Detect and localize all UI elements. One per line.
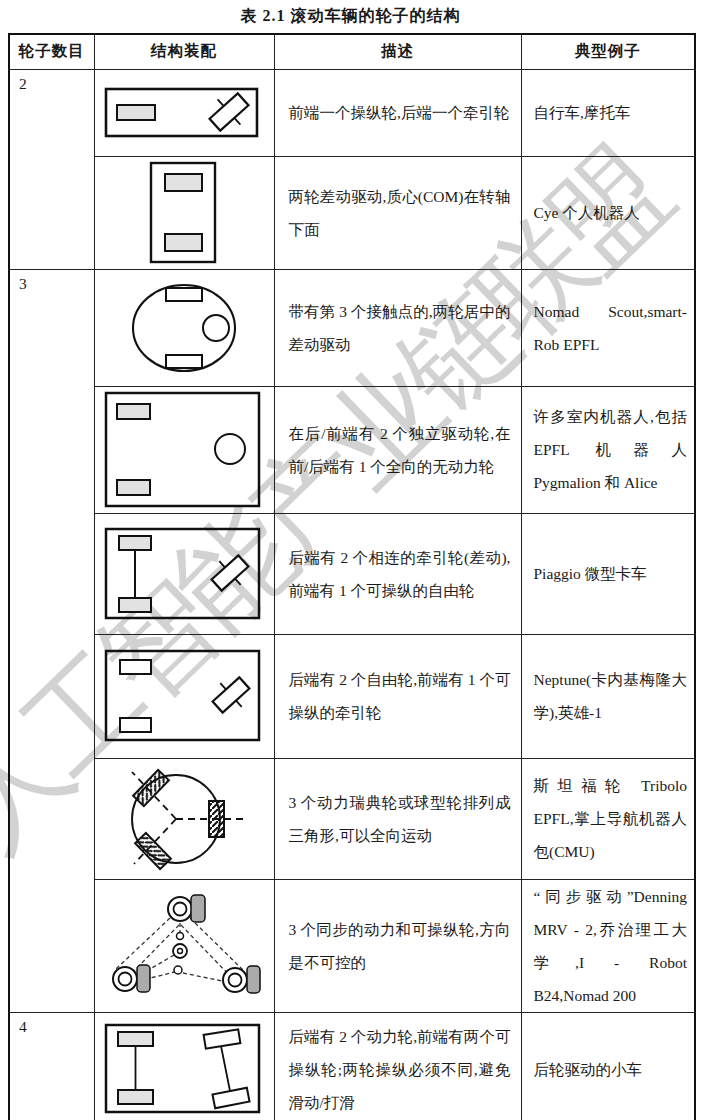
book-page: 人工智能产业链联盟 表 2.1 滚动车辆的轮子的结构 轮子数目 结构装配 描述 … — [0, 0, 701, 1120]
two-wheel-differential-com-diagram — [149, 161, 219, 265]
description-cell: 3 个动力瑞典轮或球型轮排列成三角形,可以全向运动 — [274, 758, 521, 879]
three-wheel-synchro-drive-diagram — [100, 893, 268, 999]
wheel-count-2: 2 — [9, 69, 94, 269]
three-wheel-independent-drive-diagram — [104, 391, 264, 509]
table-row: 3 个同步的动力和可操纵轮,方向是不可控的 “同步驱动”Denning MRV … — [9, 879, 695, 1012]
description-cell: 前端一个操纵轮,后端一个牵引轮 — [274, 69, 521, 156]
examples-cell: 斯坦福轮 Tribolo EPFL,掌上导航机器人包(CMU) — [521, 758, 695, 879]
wheel-count-3: 3 — [9, 269, 94, 1012]
diagram-cell — [94, 69, 274, 156]
table-row: 4 — [9, 1012, 695, 1120]
table-row: 两轮差动驱动,质心(COM)在转轴下面 Cye 个人机器人 — [9, 156, 695, 269]
examples-cell: 许多室内机器人,包括 EPFL 机器人 Pygmalion 和 Alice — [521, 386, 695, 513]
table-row: 3 带有第 3 个接触点的,两轮居中的差动驱动 Nomad Scout,smar… — [9, 269, 695, 386]
three-wheel-steered-traction-diagram — [104, 649, 264, 743]
description-cell: 3 个同步的动力和可操纵轮,方向是不可控的 — [274, 879, 521, 1012]
table-row: 2 前端一个操纵轮,后端一个牵引轮 自行车,摩托车 — [9, 69, 695, 156]
diagram-cell — [94, 156, 274, 269]
three-swedish-wheels-triangle-diagram — [116, 767, 252, 871]
two-wheel-bicycle-diagram — [104, 87, 264, 139]
table-title: 表 2.1 滚动车辆的轮子的结构 — [0, 6, 701, 27]
col-header-description: 描述 — [274, 34, 521, 69]
four-wheel-rear-drive-diagram — [104, 1023, 264, 1115]
diagram-cell — [94, 269, 274, 386]
description-cell: 后端有 2 个动力轮,前端有两个可操纵轮;两轮操纵必须不同,避免滑动/打滑 — [274, 1012, 521, 1120]
examples-cell: 后轮驱动的小车 — [521, 1012, 695, 1120]
table-row: 后端有 2 个相连的牵引轮(差动),前端有 1 个可操纵的自由轮 Piaggio… — [9, 513, 695, 634]
col-header-structure: 结构装配 — [94, 34, 274, 69]
examples-cell: Nomad Scout,smart-Rob EPFL — [521, 269, 695, 386]
diagram-cell — [94, 1012, 274, 1120]
examples-cell: Neptune(卡内基梅隆大学),英雄-1 — [521, 634, 695, 758]
three-wheel-connected-traction-diagram — [104, 527, 264, 621]
description-cell: 带有第 3 个接触点的,两轮居中的差动驱动 — [274, 269, 521, 386]
col-header-wheel-count: 轮子数目 — [9, 34, 94, 69]
examples-cell: 自行车,摩托车 — [521, 69, 695, 156]
wheel-count-4: 4 — [9, 1012, 94, 1120]
wheel-structure-table: 轮子数目 结构装配 描述 典型例子 2 — [8, 33, 696, 1120]
table-row: 后端有 2 个自由轮,前端有 1 个可操纵的牵引轮 Neptune(卡内基梅隆大… — [9, 634, 695, 758]
description-cell: 两轮差动驱动,质心(COM)在转轴下面 — [274, 156, 521, 269]
table-row: 3 个动力瑞典轮或球型轮排列成三角形,可以全向运动 斯坦福轮 Tribolo E… — [9, 758, 695, 879]
examples-cell: Cye 个人机器人 — [521, 156, 695, 269]
description-cell: 在后/前端有 2 个独立驱动轮,在前/后端有 1 个全向的无动力轮 — [274, 386, 521, 513]
diagram-cell — [94, 386, 274, 513]
col-header-examples: 典型例子 — [521, 34, 695, 69]
header-row: 轮子数目 结构装配 描述 典型例子 — [9, 34, 695, 69]
table-row: 在后/前端有 2 个独立驱动轮,在前/后端有 1 个全向的无动力轮 许多室内机器… — [9, 386, 695, 513]
diagram-cell — [94, 879, 274, 1012]
diagram-cell — [94, 634, 274, 758]
examples-cell: Piaggio 微型卡车 — [521, 513, 695, 634]
description-cell: 后端有 2 个相连的牵引轮(差动),前端有 1 个可操纵的自由轮 — [274, 513, 521, 634]
description-cell: 后端有 2 个自由轮,前端有 1 个可操纵的牵引轮 — [274, 634, 521, 758]
diagram-cell — [94, 758, 274, 879]
diagram-cell — [94, 513, 274, 634]
examples-cell: “同步驱动”Denning MRV - 2,乔治理工大学,I - Robot B… — [521, 879, 695, 1012]
three-wheel-centered-differential-diagram — [129, 282, 239, 374]
